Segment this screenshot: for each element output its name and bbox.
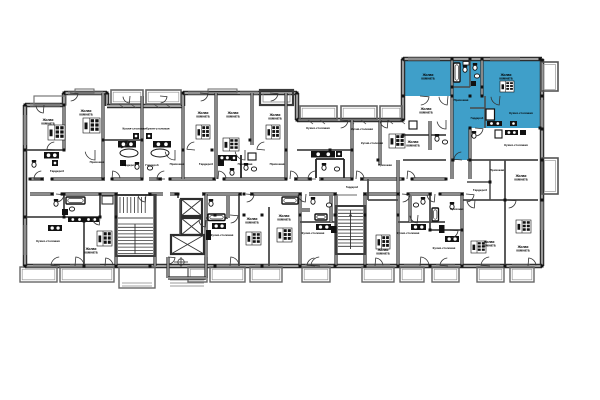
svg-text:комната: комната [376, 252, 389, 256]
svg-text:Гардероб: Гардероб [199, 162, 213, 166]
svg-text:комната: комната [226, 115, 239, 119]
svg-text:Гардероб: Гардероб [122, 163, 136, 167]
svg-text:комната: комната [268, 117, 281, 121]
svg-text:Прихожая: Прихожая [378, 163, 392, 167]
svg-text:Кухня-столовая: Кухня-столовая [361, 141, 383, 145]
svg-text:Кухня-столовая: Кухня-столовая [509, 111, 533, 115]
svg-text:Кухня-столовая: Кухня-столовая [504, 143, 528, 147]
svg-text:комната: комната [41, 122, 54, 126]
svg-text:Гардероб: Гардероб [50, 169, 64, 173]
svg-text:комната: комната [277, 218, 290, 222]
svg-text:комната: комната [499, 77, 512, 81]
svg-text:комната: комната [516, 249, 529, 253]
svg-text:комната: комната [84, 251, 97, 255]
svg-text:Кухня-столовая: Кухня-столовая [302, 231, 325, 235]
svg-text:комната: комната [514, 178, 527, 182]
svg-text:Прихожая: Прихожая [170, 162, 185, 166]
svg-text:Прихожая: Прихожая [490, 168, 505, 172]
svg-text:Гардероб: Гардероб [145, 163, 158, 167]
svg-text:Кухня-столовая: Кухня-столовая [397, 231, 420, 235]
svg-text:комната: комната [79, 113, 92, 117]
svg-text:комната: комната [196, 115, 209, 119]
svg-text:Кухня-столовая: Кухня-столовая [433, 246, 456, 250]
svg-text:комната: комната [406, 144, 419, 148]
svg-text:Гардероб: Гардероб [346, 185, 359, 189]
svg-text:Кухня-столовая: Кухня-столовая [351, 127, 373, 131]
svg-text:Кухня-столовая: Кухня-столовая [211, 233, 234, 237]
svg-text:Кухня-столовая: Кухня-столовая [306, 126, 330, 130]
svg-text:Прихожая: Прихожая [90, 160, 105, 164]
svg-text:комната: комната [419, 111, 432, 115]
svg-text:комната: комната [421, 77, 434, 81]
svg-text:Гардероб: Гардероб [473, 188, 487, 192]
svg-text:комната: комната [482, 244, 495, 248]
svg-text:Кухня-столоваяКухня-столовая: Кухня-столоваяКухня-столовая [122, 127, 169, 131]
svg-text:комната: комната [245, 221, 258, 225]
svg-text:Прихожая: Прихожая [450, 207, 464, 211]
svg-text:Прихожая: Прихожая [270, 162, 285, 166]
svg-text:Гардероб: Гардероб [471, 116, 484, 120]
svg-text:Прихожая: Прихожая [238, 162, 253, 166]
svg-text:Кухня-столовая: Кухня-столовая [36, 239, 60, 243]
svg-text:Прихожая: Прихожая [454, 98, 469, 102]
